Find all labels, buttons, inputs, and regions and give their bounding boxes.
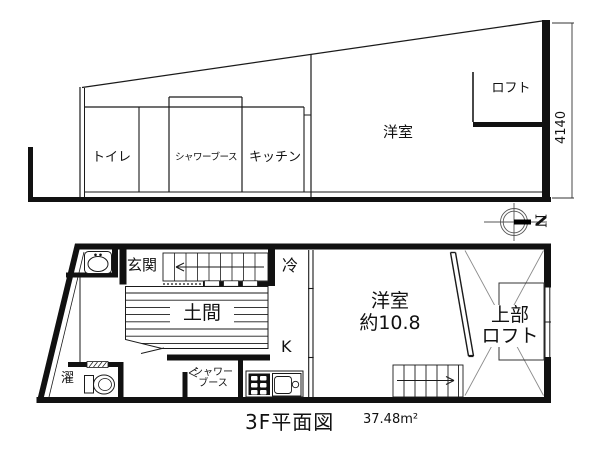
floor-plan-drawing <box>0 0 600 455</box>
compass-north-label: N <box>532 214 548 228</box>
center-divider-wall <box>308 250 314 397</box>
plan-top-wall <box>75 244 551 250</box>
caption-title: 3F平面図 <box>245 412 334 433</box>
plan-room-line2: 約10.8 <box>345 313 435 335</box>
plan-upper-loft-label: 上部 ロフト <box>477 305 543 347</box>
section-loft-label: ロフト <box>486 82 536 96</box>
plan-left-diagonal-wall <box>37 244 82 404</box>
refrigerator-wall <box>268 244 275 287</box>
section-kitchen-label: キッチン <box>244 151 306 165</box>
loft-ladder <box>451 253 474 357</box>
section-right-wall <box>542 20 550 200</box>
plan-doma-label: 土間 <box>170 304 234 324</box>
plan-upper-loft-line2: ロフト <box>479 326 541 347</box>
plan-right-wall-lower <box>544 357 551 403</box>
plan-laundry-label: 濯 <box>61 372 74 386</box>
kitchen-counter <box>246 371 303 397</box>
plan-room-label: 洋室 約10.8 <box>345 291 435 335</box>
plan-entrance-label: 玄関 <box>127 258 157 274</box>
section-view <box>28 20 574 202</box>
plan-upper-loft-line1: 上部 <box>479 305 541 326</box>
window-symbol <box>544 288 551 358</box>
section-shower-label: シャワーブース <box>168 153 244 163</box>
caption-area: 37.48m² <box>363 413 418 427</box>
section-room-label: 洋室 <box>368 125 428 141</box>
washbasin-icon <box>85 252 112 274</box>
plan-shower-label: シャワー ブース <box>186 368 240 389</box>
plan-shower-line1: シャワー <box>186 368 240 379</box>
section-baseline <box>28 197 551 202</box>
plan-right-wall-upper <box>544 244 551 288</box>
plan-refrigerator-label: 冷 <box>282 258 298 275</box>
sliding-door-symbol <box>163 281 268 287</box>
plan-kitchen-k-label: K <box>281 339 292 356</box>
north-pointer <box>514 220 531 225</box>
staircase-lower <box>393 365 463 397</box>
section-loft-floor <box>473 122 542 127</box>
toilet-icon <box>85 375 115 394</box>
floor-plan-canvas: トイレ シャワーブース キッチン 洋室 ロフト 4140 N 玄関 冷 土間 K… <box>0 0 600 455</box>
plan-bottom-wall <box>37 397 552 403</box>
dimension-label: 4140 <box>546 112 578 144</box>
plan-shower-line2: ブース <box>186 379 240 390</box>
section-toilet-label: トイレ <box>84 151 139 165</box>
toilet-door-hatch <box>87 362 108 368</box>
plan-room-line1: 洋室 <box>345 291 435 313</box>
section-left-parapet <box>28 147 33 200</box>
staircase-upper <box>163 253 268 281</box>
entrance-wall <box>120 244 127 285</box>
